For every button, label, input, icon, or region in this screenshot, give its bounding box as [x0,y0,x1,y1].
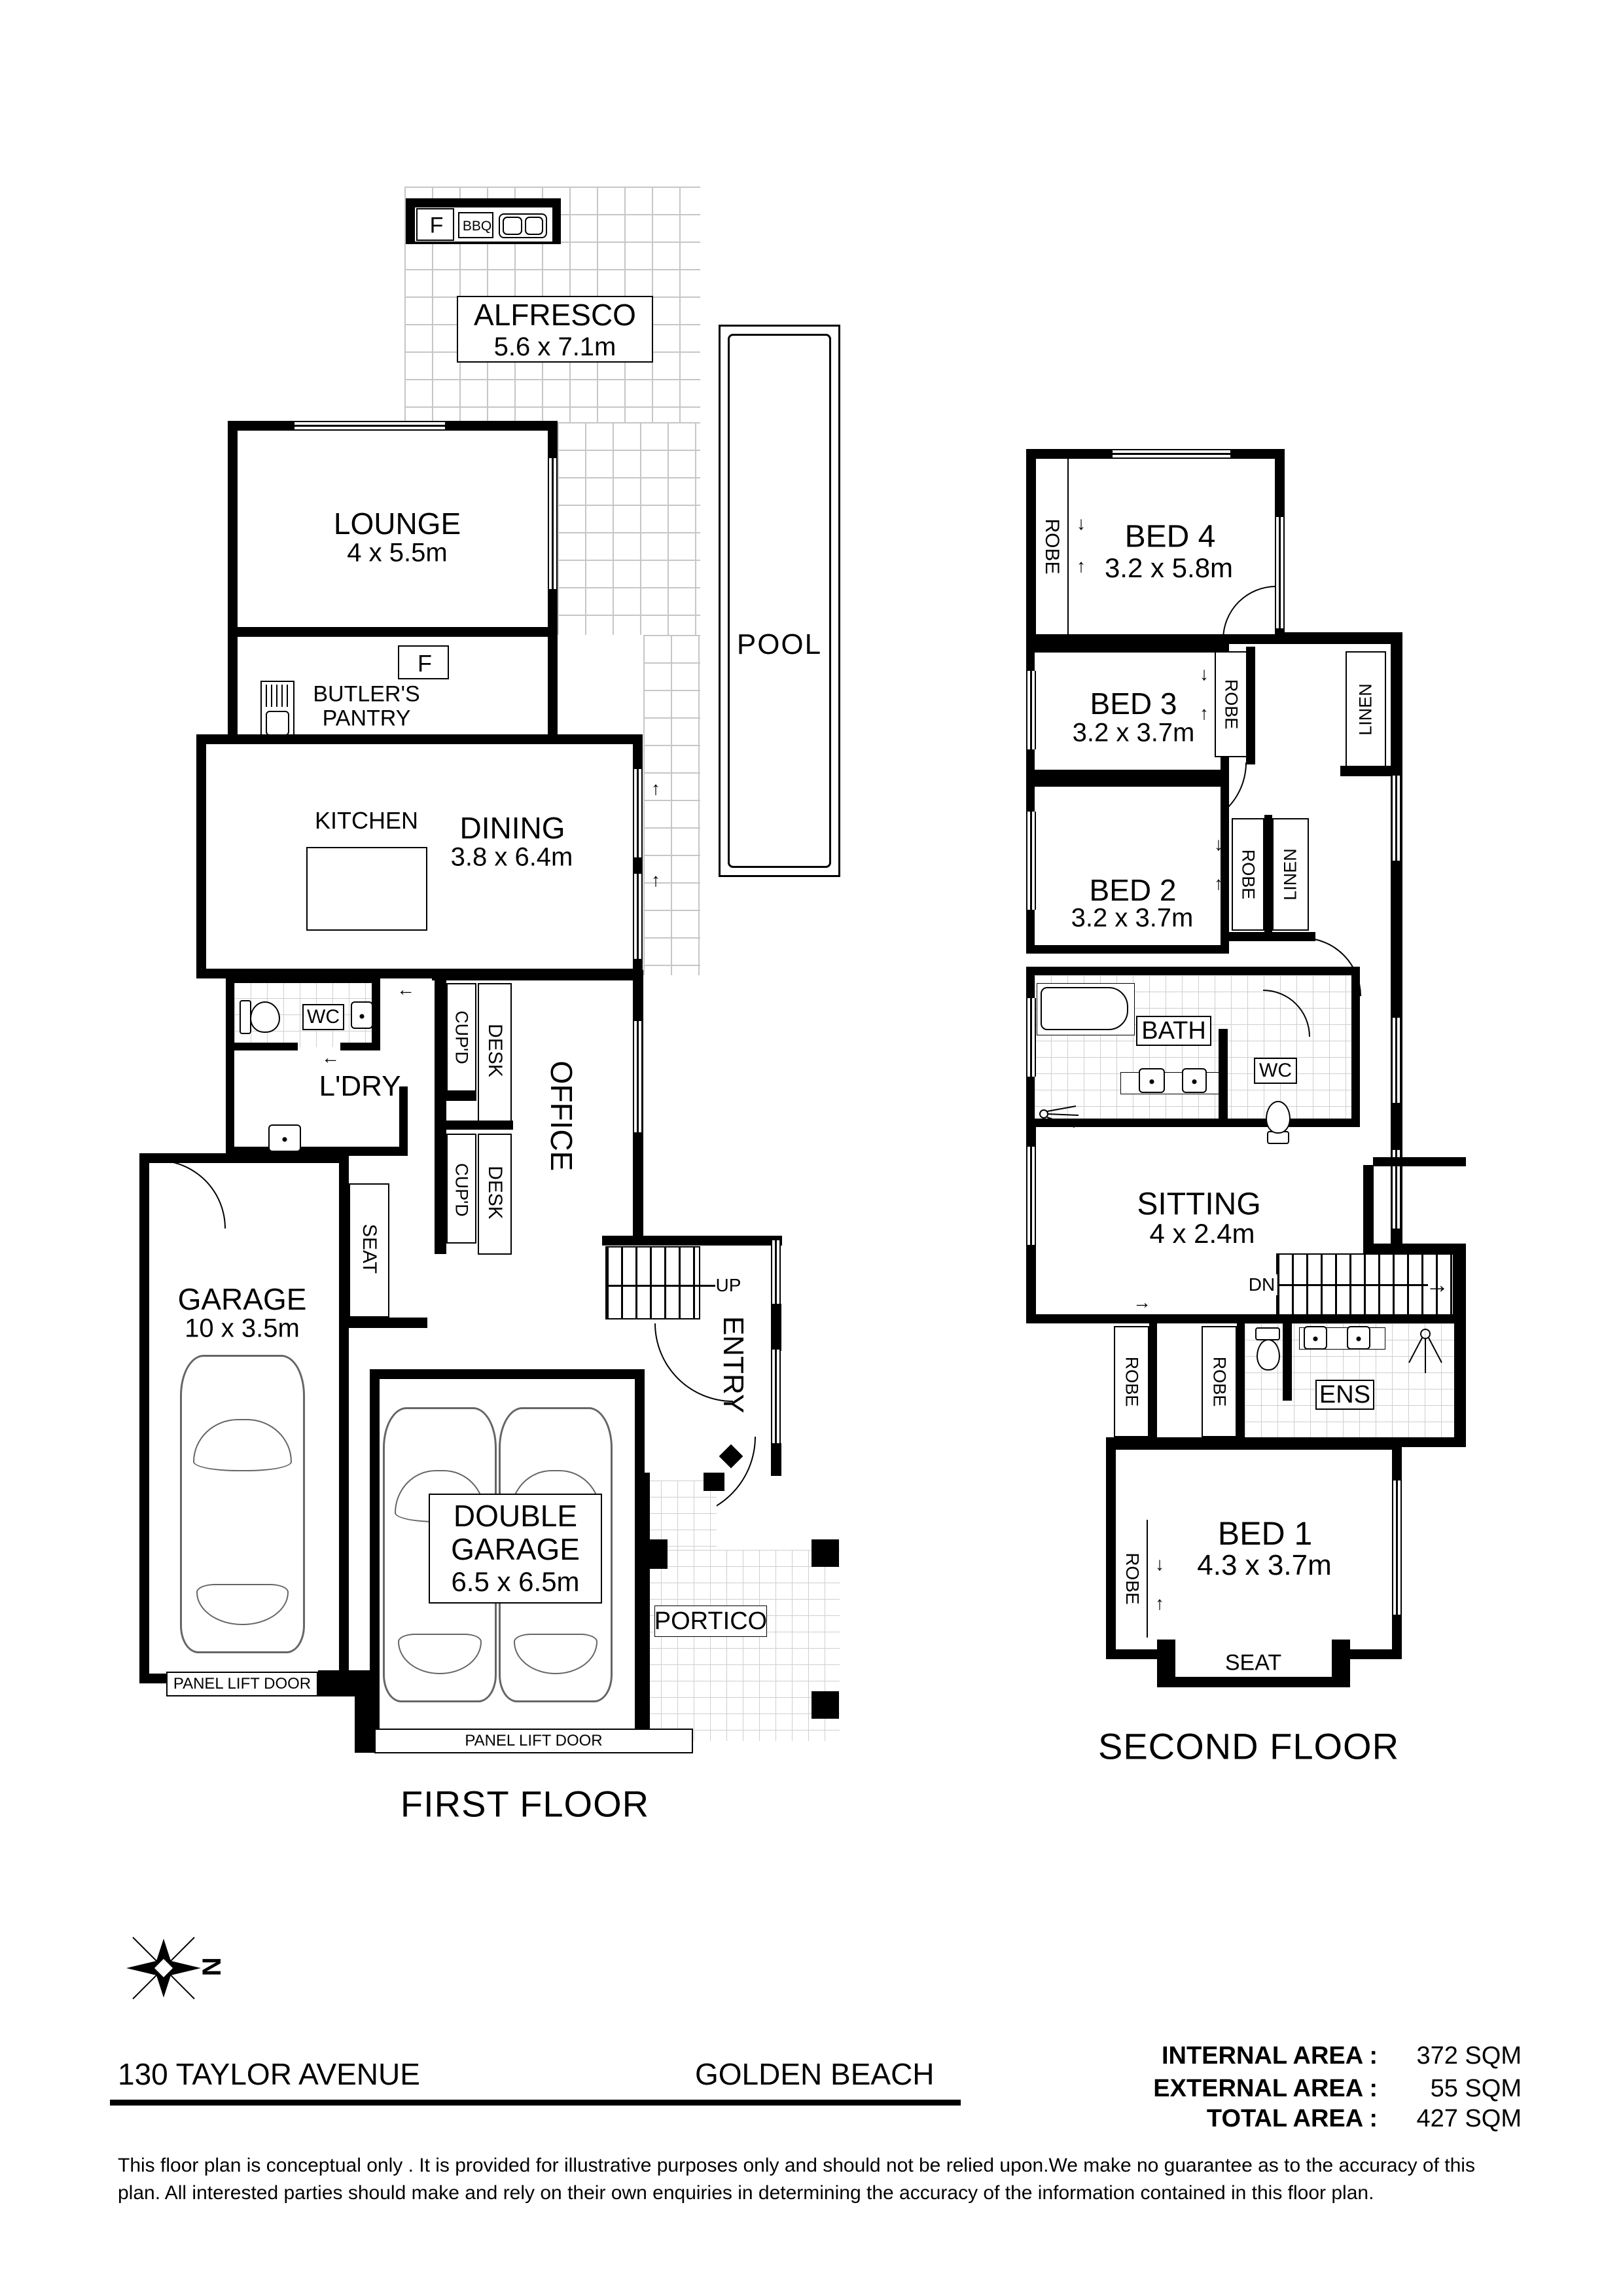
wall [1219,1029,1228,1127]
stairs-dn-label: DN [1246,1274,1277,1295]
cupboard-2-label: CUP'D [452,1163,472,1217]
disclaimer-line-2: plan. All interested parties should make… [118,2182,1374,2204]
wall [1149,1323,1157,1443]
disclaimer-line-1: This floor plan is conceptual only . It … [118,2155,1475,2177]
slide-arrow-icon: ↓ [1200,664,1209,685]
double-garage-name: DOUBLE GARAGE [437,1499,594,1566]
wall [226,1050,234,1155]
address-underline [110,2100,961,2106]
lounge-dims: 4 x 5.5m [347,539,447,568]
slide-arrow-icon: ↓ [1155,1554,1164,1575]
bed1-dims: 4.3 x 3.7m [1197,1549,1331,1582]
bed3-window-left [1026,671,1036,749]
stairs-up-line [605,1285,715,1287]
suburb: GOLDEN BEACH [695,2056,935,2092]
bbq-label: BBQ [463,219,491,234]
wall [442,1092,476,1101]
sitting-window-left [1026,1147,1036,1245]
wall [442,1121,513,1130]
entry-window-1 [771,1240,781,1306]
portico-pillar [638,1539,668,1569]
landing-window-2 [1391,1018,1401,1103]
bed4-dims: 3.2 x 5.8m [1105,552,1233,584]
pantry-fridge-label: F [418,650,432,677]
wall [771,1443,781,1476]
portico-pillar [811,1691,839,1719]
compass-icon [121,1926,206,2011]
bed1-name: BED 1 [1218,1515,1313,1552]
cupboard-1-label: CUP'D [452,1011,472,1064]
bed4-window-top [1113,449,1230,459]
bed2-robe-label: ROBE [1238,850,1258,900]
office-name: OFFICE [544,1061,579,1172]
slide-arrow-icon: ↑ [1155,1593,1164,1614]
wc2-label-box: WC [1254,1058,1297,1084]
bed2-dims: 3.2 x 3.7m [1071,904,1194,933]
kitchen-island [306,847,427,931]
lounge-window-top [294,421,445,431]
wall [1373,1157,1466,1166]
basin-icon [351,1001,373,1029]
wall [318,1670,376,1696]
pool-label: POOL [737,628,822,661]
bath-label-box: BATH [1136,1016,1211,1046]
compass-n-label: N [196,1958,226,1977]
wall [226,975,234,1050]
shower-icon [1038,1105,1081,1141]
bed3-name: BED 3 [1090,686,1177,721]
wall [349,1318,427,1328]
basin-icon [1182,1068,1207,1093]
wall [1026,1314,1466,1323]
bed4-window-right [1275,517,1285,628]
shower-icon [1404,1327,1447,1377]
fridge-alfresco-label: F [430,213,444,239]
panel-lift-door-2: PANEL LIFT DOOR [374,1729,693,1753]
kitchen-name: KITCHEN [315,807,418,834]
stairs-dn-arrow-icon: → [1425,1271,1449,1299]
alfresco-name: ALFRESCO [474,297,636,332]
wall [1246,647,1255,764]
panel-lift-door-2-label: PANEL LIFT DOOR [465,1732,602,1750]
bed4-name: BED 4 [1125,519,1216,555]
dining-window-1 [633,769,643,857]
ens-label-box: ENS [1315,1380,1374,1410]
butlers-pantry-name: BUTLER'S PANTRY [294,683,438,732]
pantry-sink-bowl [266,711,289,736]
dining-name: DINING [460,810,565,846]
internal-area-label: INTERNAL AREA : [1011,2042,1378,2070]
external-area-value: 55 SQM [1378,2075,1522,2103]
garage-dims: 10 x 3.5m [185,1314,300,1344]
pantry-drainer [266,685,289,707]
wall [602,1236,782,1246]
wall [1363,1244,1466,1253]
hall-robe-1-label: ROBE [1122,1357,1142,1407]
first-floor-title: FIRST FLOOR [401,1783,649,1825]
garage-name: GARAGE [178,1282,307,1317]
wall [226,1043,298,1050]
car-icon [180,1355,305,1653]
hall-robe-2-label: ROBE [1209,1357,1230,1407]
wall [340,1043,380,1050]
wall [1454,1250,1466,1446]
wall [355,1695,376,1753]
stairs-dn-line [1277,1284,1428,1286]
lounge-name: LOUNGE [334,506,461,541]
seat-label: SEAT [1225,1651,1281,1676]
sitting-name: SITTING [1137,1187,1260,1223]
wall [1340,766,1393,776]
portico-label-box: PORTICO [654,1605,767,1637]
portico-name: PORTICO [654,1607,767,1636]
total-area-value: 427 SQM [1378,2105,1522,2133]
wc2-name: WC [1259,1060,1292,1082]
desk-2-label: DESK [484,1166,506,1219]
slide-arrow-icon: ↑ [651,778,660,799]
second-floor-title: SECOND FLOOR [1098,1725,1399,1768]
bbq-sink-bowl-2 [525,217,543,235]
basin-icon [1139,1068,1165,1093]
bath-window-left [1026,998,1036,1077]
slide-arrow-icon: ↑ [1077,556,1086,577]
panel-lift-door-1-label: PANEL LIFT DOOR [173,1675,311,1693]
slide-arrow-icon: → [1133,1292,1151,1313]
arrow-left-icon: ← [397,979,415,1000]
portico-pillar [704,1473,724,1491]
toilet-icon [250,1001,280,1033]
bbq-sink-bowl-1 [503,217,522,235]
portico-tiles [645,1550,840,1741]
floor-plan-page: F BBQ ALFRESCO 5.6 x 7.1m POOL LOUNGE 4 … [0,0,1623,2296]
basin-icon [1304,1326,1327,1350]
toilet-icon [1255,1327,1280,1340]
slide-arrow-icon: ↓ [1214,834,1223,855]
wall [432,970,643,980]
slide-arrow-icon: ↑ [651,870,660,891]
garage-seat-label: SEAT [358,1224,380,1274]
wall [226,975,380,983]
bbq: BBQ [458,212,493,238]
bed2-window-left [1026,812,1036,910]
ens-name: ENS [1319,1381,1370,1409]
double-garage-label-box: DOUBLE GARAGE 6.5 x 6.5m [429,1494,602,1604]
lounge-window-right [548,458,558,589]
pool-water [728,334,831,868]
fridge-alfresco: F [416,208,454,241]
pool-deck-tiles [643,635,700,975]
wall [1363,1165,1374,1257]
stairs-up [605,1246,700,1319]
wc-name: WC [307,1006,340,1028]
bed1-robe-label: ROBE [1122,1552,1143,1604]
total-area-label: TOTAL AREA : [1011,2105,1378,2133]
bathtub-icon [1041,987,1128,1030]
entry-name: ENTRY [717,1316,749,1413]
office-window [633,1021,643,1132]
laundry-sink-icon [268,1124,301,1152]
panel-lift-door-1: PANEL LIFT DOOR [166,1672,318,1696]
address: 130 TAYLOR AVENUE [118,2056,420,2092]
external-area-label: EXTERNAL AREA : [1011,2075,1378,2103]
bed1-window-right [1392,1480,1402,1615]
toilet-icon [1257,1339,1280,1371]
bath-name: BATH [1141,1017,1206,1045]
wall [1157,1677,1350,1687]
slide-arrow-icon: ↓ [1077,513,1086,534]
alfresco-dims: 5.6 x 7.1m [494,332,616,362]
wall [1283,1323,1292,1401]
landing-window-1 [1391,776,1401,861]
vanity-bench [1120,1072,1226,1094]
wall [1237,1323,1245,1443]
dining-window-2 [633,874,643,959]
bed4-robe-label: ROBE [1041,518,1063,574]
arrow-left-icon: ← [321,1047,340,1068]
double-garage-dims: 6.5 x 6.5m [451,1566,579,1598]
alfresco-label-box: ALFRESCO 5.6 x 7.1m [457,296,653,363]
wall [435,979,446,1254]
bed2-linen-label: LINEN [1281,848,1301,901]
laundry-name: L'DRY [319,1070,401,1103]
dining-dims: 3.8 x 6.4m [451,843,573,872]
wall [1279,632,1402,644]
wall [638,1473,650,1742]
alfresco-tiles-side [558,422,700,635]
toilet-icon [1266,1101,1291,1134]
portico-pillar [811,1539,839,1567]
bed3-robe-label: ROBE [1221,679,1241,730]
desk-1-label: DESK [484,1024,506,1077]
internal-area-value: 372 SQM [1378,2042,1522,2070]
pantry-fridge: F [398,645,449,679]
entry-window-2 [771,1350,781,1444]
slide-arrow-icon: ↑ [1214,873,1223,894]
bed3-dims: 3.2 x 3.7m [1073,719,1195,748]
wall [771,1304,781,1351]
slide-arrow-icon: ↑ [1200,703,1209,724]
wall [1264,815,1272,936]
stairs-up-label: UP [716,1275,741,1296]
wc-label-box: WC [302,1004,344,1030]
bed2-name: BED 2 [1090,872,1177,908]
linen-top-label: LINEN [1356,683,1376,736]
sitting-dims: 4 x 2.4m [1149,1218,1255,1249]
basin-icon [1347,1326,1370,1350]
